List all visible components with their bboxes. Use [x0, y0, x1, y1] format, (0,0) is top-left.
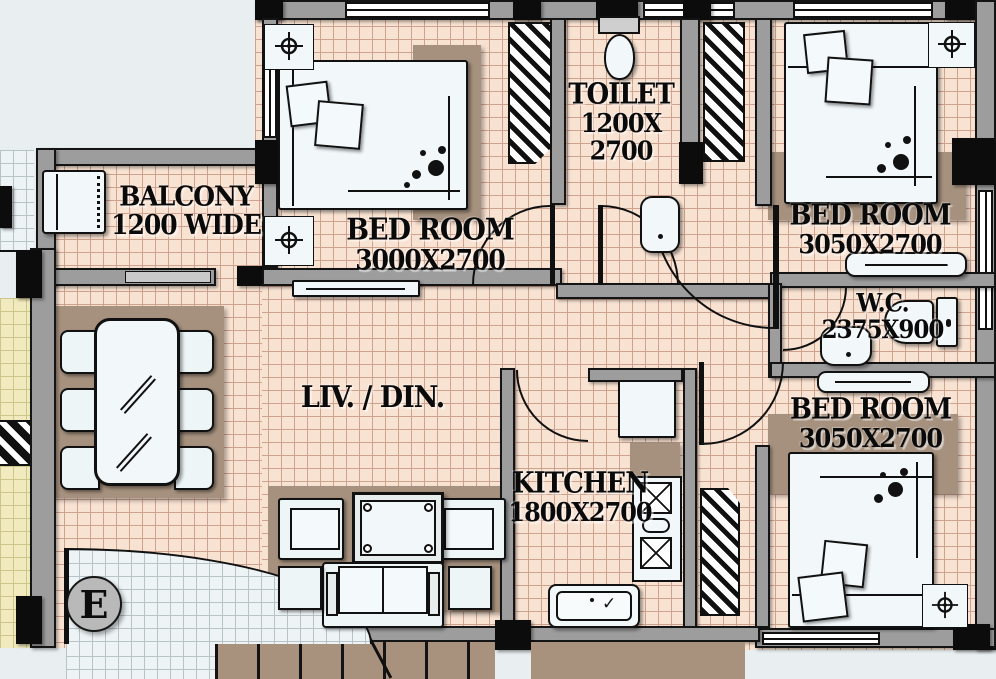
toilet-wc-bowl	[604, 34, 635, 80]
table-glass-line	[116, 433, 152, 472]
staircase-treads	[215, 642, 495, 679]
bedroom2-corner-pad	[928, 22, 975, 68]
table-leg	[424, 503, 433, 512]
dining-chair	[174, 388, 214, 432]
balcony-size: 1200 WIDE	[105, 211, 267, 240]
bedroom3-pillow-2	[797, 571, 848, 622]
wall-bedroom3-left	[755, 445, 770, 628]
ceiling-light-icon	[937, 29, 967, 59]
bedroom1-top-window	[345, 2, 490, 18]
room-label-living-dining: LIV. / DIN.	[290, 383, 455, 414]
dining-chair	[174, 330, 214, 374]
sink-drain-check-icon: ✓	[602, 594, 616, 614]
balcony-cabinet-divider	[56, 174, 58, 230]
bedroom1-plant	[398, 140, 458, 200]
ottoman-right	[448, 566, 492, 610]
plant-dot	[903, 136, 911, 144]
room-label-wc: W.C. 2375X900	[805, 291, 960, 344]
hall-wardrobe	[703, 22, 745, 162]
passage-wardrobe	[700, 488, 740, 616]
bedroom2-pillow-2	[824, 56, 873, 105]
bedroom2-plant	[865, 120, 925, 190]
toilet-size-2: 2700	[558, 137, 684, 164]
floor-plan: ✓ E BALCONY 1200 WIDE BED ROOM 3000X2700…	[0, 0, 996, 679]
entrance-landing-floor	[66, 643, 215, 679]
bedroom1-size: 3000X2700	[330, 246, 530, 275]
plant-dot	[420, 150, 426, 156]
ceiling-light-icon	[274, 31, 304, 61]
living-dining-name: LIV. / DIN.	[290, 383, 455, 414]
column-right-window	[952, 138, 994, 185]
coffee-table	[352, 492, 444, 564]
bedroom1-name: BED ROOM	[330, 215, 530, 246]
armchair-seat	[290, 508, 340, 550]
toilet-name: TOILET	[558, 80, 684, 110]
room-label-bedroom1: BED ROOM 3000X2700	[330, 215, 530, 274]
plant-dot	[412, 170, 421, 179]
bedroom3-dresser	[817, 371, 930, 393]
bedroom1-corner-pad-bottom	[264, 216, 314, 266]
wall-left	[30, 248, 56, 648]
bedroom3-bottom-window	[762, 632, 880, 645]
kitchen-sink-basin	[556, 591, 632, 621]
sofa-armrest-left	[326, 572, 338, 616]
bedroom1-wardrobe	[508, 22, 552, 164]
room-label-kitchen: KITCHEN 1800X2700	[505, 469, 655, 526]
room-label-toilet: TOILET 1200X 2700	[558, 80, 684, 165]
plant-dot	[877, 164, 886, 173]
adjacent-floor-yellow-top	[0, 298, 32, 420]
sofa-armrest-right	[428, 572, 440, 616]
wall-kitchen-right	[683, 368, 697, 628]
kitchen-burner-2	[640, 537, 672, 569]
dining-table	[94, 318, 180, 486]
ceiling-light-icon	[931, 591, 959, 619]
plant-dot	[900, 468, 908, 476]
basin-drain-dot	[846, 352, 851, 357]
plant-dot	[438, 146, 446, 154]
plant-dot	[404, 182, 410, 188]
bedroom3-corner-pad	[922, 584, 968, 628]
kitchen-name: KITCHEN	[505, 469, 655, 499]
sofa-cushions	[338, 566, 428, 614]
bedroom3-size: 3050X2700	[778, 425, 963, 452]
plant-dot	[888, 482, 903, 497]
bedroom3-plant	[862, 458, 922, 524]
kitchen-sink: ✓	[548, 584, 640, 628]
toilet-wc-tank	[598, 16, 640, 34]
toilet-door-leaf	[598, 205, 603, 285]
balcony-cabinet	[42, 170, 106, 234]
balcony-window-sill	[125, 271, 211, 283]
basin-drain-dot	[658, 234, 663, 239]
column-balcony-door	[237, 266, 262, 286]
adjacent-fixture	[0, 186, 12, 228]
wall-balcony-top	[38, 148, 262, 166]
kitchen-fridge	[618, 380, 676, 438]
table-glass-line	[120, 375, 156, 414]
kitchen-size: 1800X2700	[505, 499, 655, 526]
bedroom1-pillow-2	[314, 100, 364, 150]
bedroom1-corner-pad-top	[264, 24, 314, 70]
ceiling-light-icon	[274, 225, 304, 255]
wc-name: W.C.	[805, 291, 960, 317]
ottoman-left	[278, 566, 322, 610]
balcony-cabinet-hinges	[97, 176, 100, 228]
table-leg	[363, 544, 372, 553]
plant-dot	[874, 494, 883, 503]
column-stair	[495, 620, 531, 650]
column-left-1	[16, 250, 42, 298]
sink-dot	[590, 598, 594, 602]
column-top-4	[683, 0, 711, 20]
bedroom2-size: 3050X2700	[775, 231, 965, 258]
wall-bedroom2-left	[755, 18, 772, 206]
plant-dot	[428, 160, 444, 176]
adjacent-hatch	[0, 420, 32, 466]
table-leg	[363, 503, 372, 512]
entrance-marker-letter: E	[80, 582, 109, 627]
plant-dot	[880, 472, 886, 478]
plant-dot	[885, 142, 891, 148]
bedroom1-tv-cabinet	[292, 280, 420, 297]
table-leg	[424, 544, 433, 553]
column-bedroom1-left	[255, 140, 279, 184]
entrance-marker: E	[66, 576, 122, 632]
dining-chair	[174, 446, 214, 490]
staircase-landing	[531, 642, 745, 679]
toilet-wash-basin	[640, 196, 680, 253]
room-label-balcony: BALCONY 1200 WIDE	[105, 182, 267, 239]
bedroom2-top-window	[793, 2, 933, 18]
armchair-seat	[444, 508, 494, 550]
room-label-bedroom3: BED ROOM 3050X2700	[778, 395, 963, 452]
column-top-1	[255, 0, 283, 20]
plant-dot	[893, 154, 909, 170]
sofa-loveseat	[322, 562, 444, 628]
column-left-2	[16, 596, 42, 644]
bedroom2-name: BED ROOM	[775, 201, 965, 231]
armchair-left	[278, 498, 344, 560]
bedroom2-right-window	[978, 190, 993, 330]
bedroom1-door-leaf	[550, 205, 555, 285]
column-top-5	[945, 0, 978, 20]
wc-size: 2375X900	[805, 317, 960, 343]
bedroom3-name: BED ROOM	[778, 395, 963, 425]
room-label-bedroom2: BED ROOM 3050X2700	[775, 201, 965, 258]
bedroom3-door-leaf	[699, 362, 704, 445]
armchair-right	[440, 498, 506, 560]
balcony-name: BALCONY	[105, 182, 267, 211]
column-top-2	[513, 0, 541, 20]
